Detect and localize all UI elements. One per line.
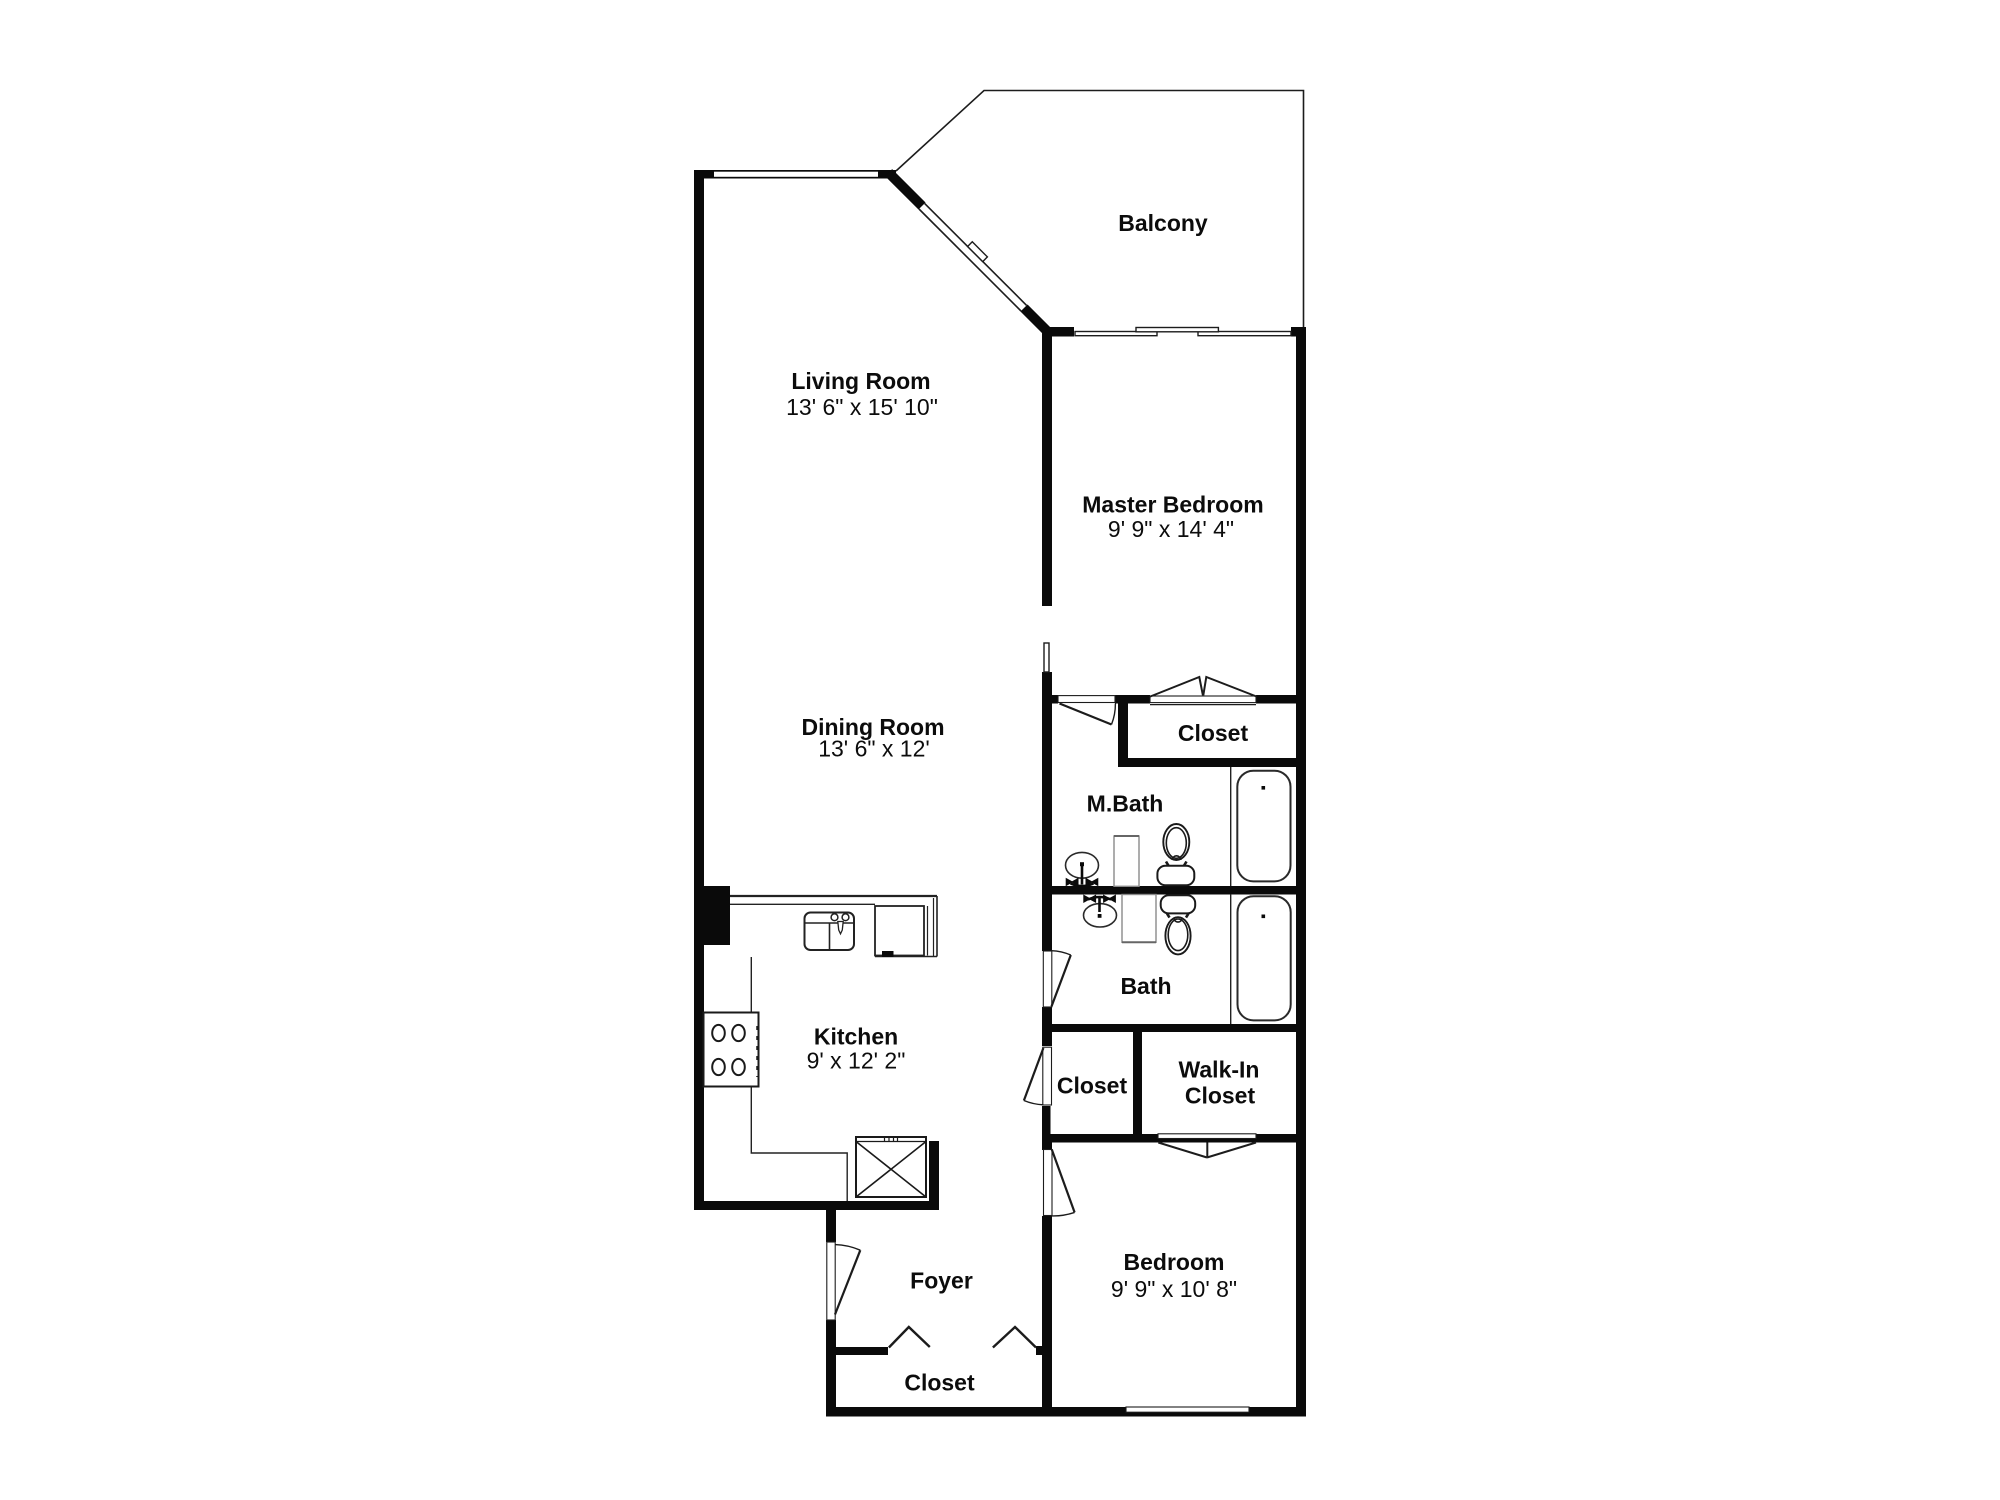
svg-text:Bath: Bath (1120, 973, 1171, 999)
svg-text:Balcony: Balcony (1118, 210, 1208, 236)
svg-text:Foyer: Foyer (910, 1268, 973, 1294)
svg-text:Closet: Closet (1178, 720, 1249, 746)
svg-text:9' 9" x 10' 8": 9' 9" x 10' 8" (1111, 1276, 1237, 1302)
svg-text:9' 9" x 14' 4": 9' 9" x 14' 4" (1108, 516, 1234, 542)
svg-text:Bedroom: Bedroom (1124, 1249, 1225, 1275)
svg-text:Kitchen: Kitchen (814, 1024, 898, 1050)
svg-text:Closet: Closet (1057, 1073, 1128, 1099)
svg-text:Closet: Closet (1185, 1083, 1256, 1109)
svg-text:13' 6" x 12': 13' 6" x 12' (818, 736, 930, 762)
svg-text:Master Bedroom: Master Bedroom (1082, 492, 1263, 518)
svg-text:Walk-In: Walk-In (1179, 1057, 1260, 1083)
svg-text:Living Room: Living Room (791, 368, 930, 394)
svg-text:13' 6" x 15' 10": 13' 6" x 15' 10" (786, 394, 938, 420)
svg-text:Closet: Closet (904, 1370, 975, 1396)
svg-text:9' x 12' 2": 9' x 12' 2" (807, 1048, 906, 1074)
svg-text:M.Bath: M.Bath (1087, 791, 1164, 817)
